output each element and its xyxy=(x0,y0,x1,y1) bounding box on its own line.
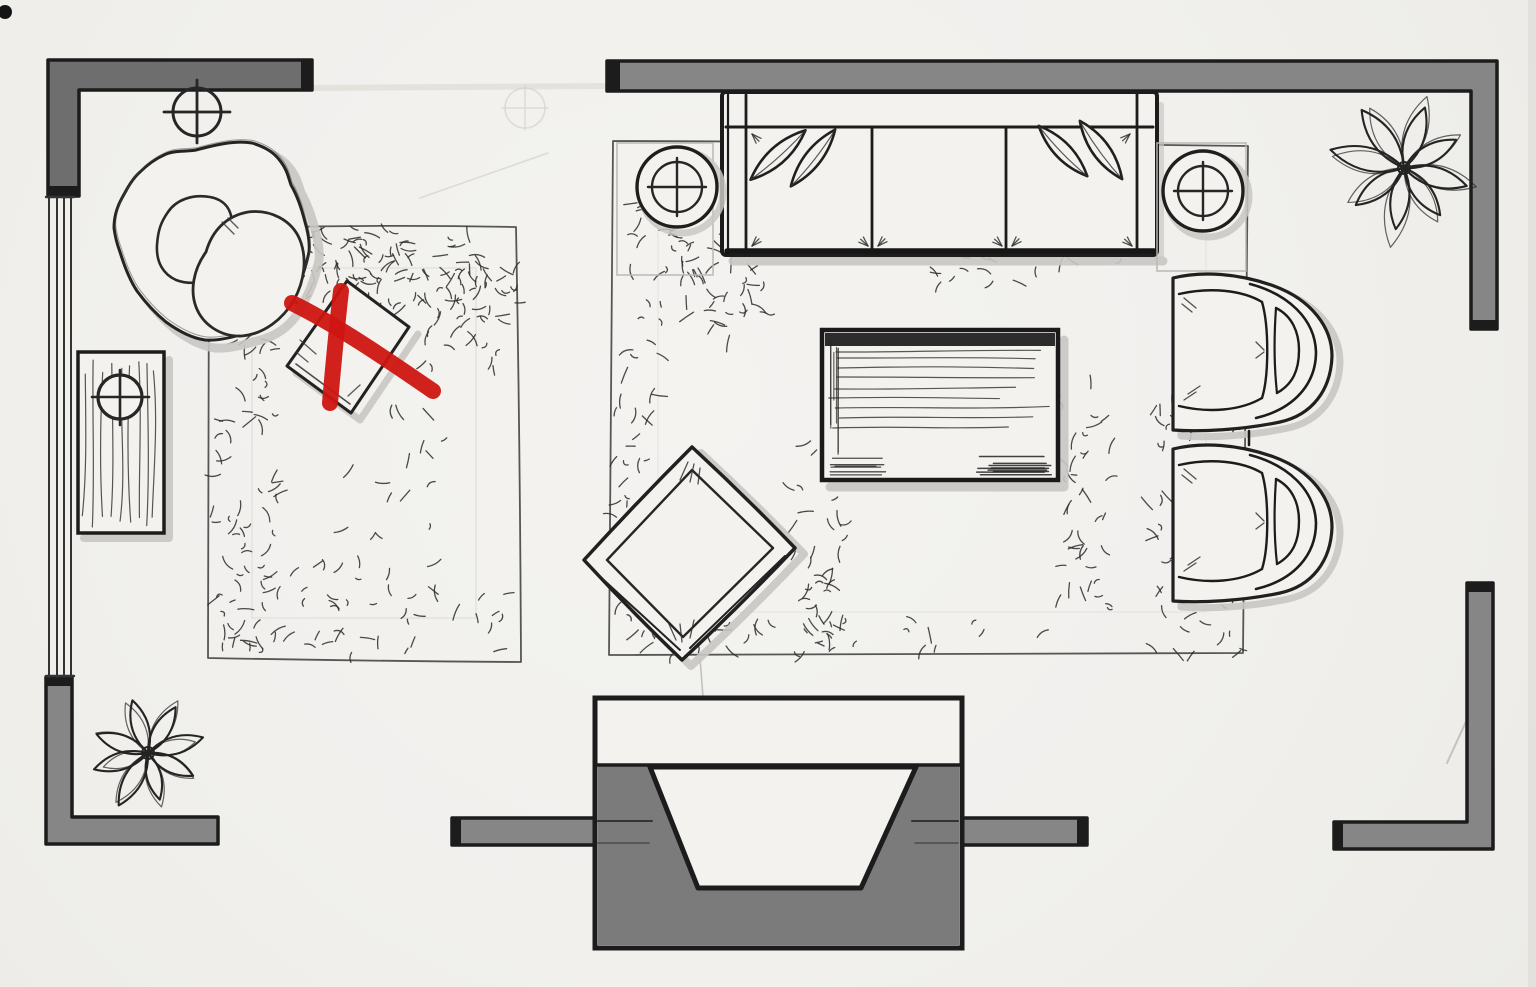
floor-plan-drawing xyxy=(0,0,1536,987)
armchair-2 xyxy=(1173,431,1340,608)
sofa xyxy=(722,92,1163,261)
lamp-table-left xyxy=(617,143,723,275)
wall-bottom-right xyxy=(1334,583,1493,849)
lamp-table-right xyxy=(1157,143,1249,271)
lounge-chair xyxy=(114,140,319,349)
armchair-1 xyxy=(1173,274,1340,437)
window-left xyxy=(46,197,74,677)
wall-bottom-a xyxy=(452,818,596,845)
floor-plan-canvas xyxy=(0,0,1536,987)
plant-top-right xyxy=(1330,97,1476,248)
plant-bottom-left xyxy=(94,700,203,807)
wall-bottom-b xyxy=(962,818,1087,845)
scan-ink-dot xyxy=(0,5,12,19)
fireplace xyxy=(595,698,962,948)
side-table-wood xyxy=(78,352,169,538)
ottoman-chair xyxy=(584,447,804,666)
coffee-table xyxy=(822,330,1064,487)
